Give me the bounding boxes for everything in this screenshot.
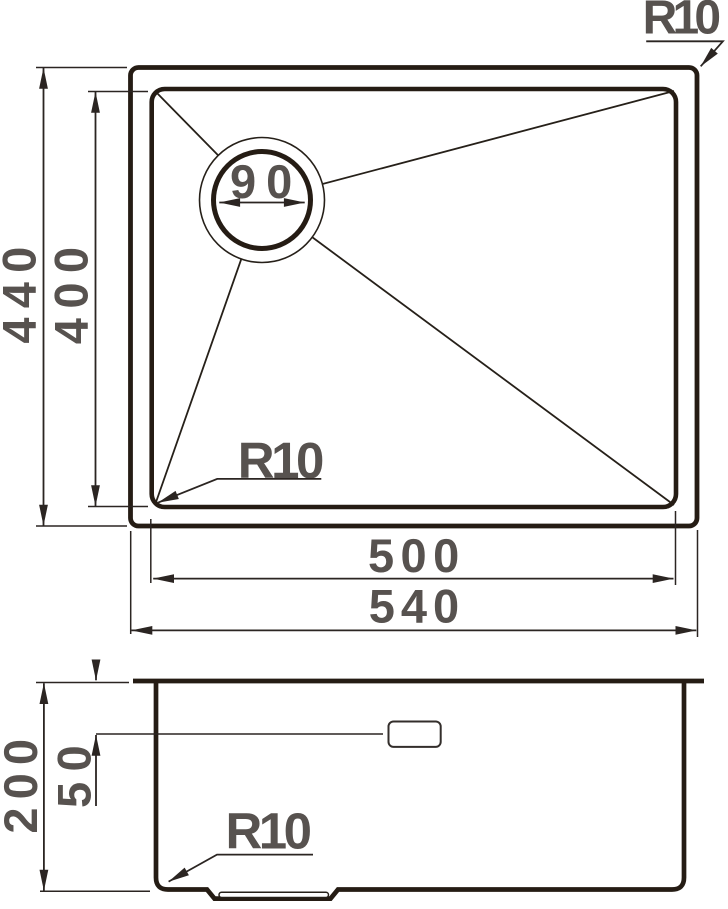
svg-text:500: 500 — [368, 529, 466, 582]
svg-text:440: 440 — [0, 238, 45, 344]
svg-text:200: 200 — [0, 731, 47, 834]
svg-text:50: 50 — [47, 735, 100, 808]
svg-text:90: 90 — [230, 155, 302, 208]
svg-text:R10: R10 — [238, 432, 323, 489]
svg-text:400: 400 — [44, 238, 97, 345]
svg-text:540: 540 — [369, 579, 465, 632]
svg-text:R10: R10 — [225, 802, 310, 859]
svg-text:R10: R10 — [643, 0, 720, 45]
